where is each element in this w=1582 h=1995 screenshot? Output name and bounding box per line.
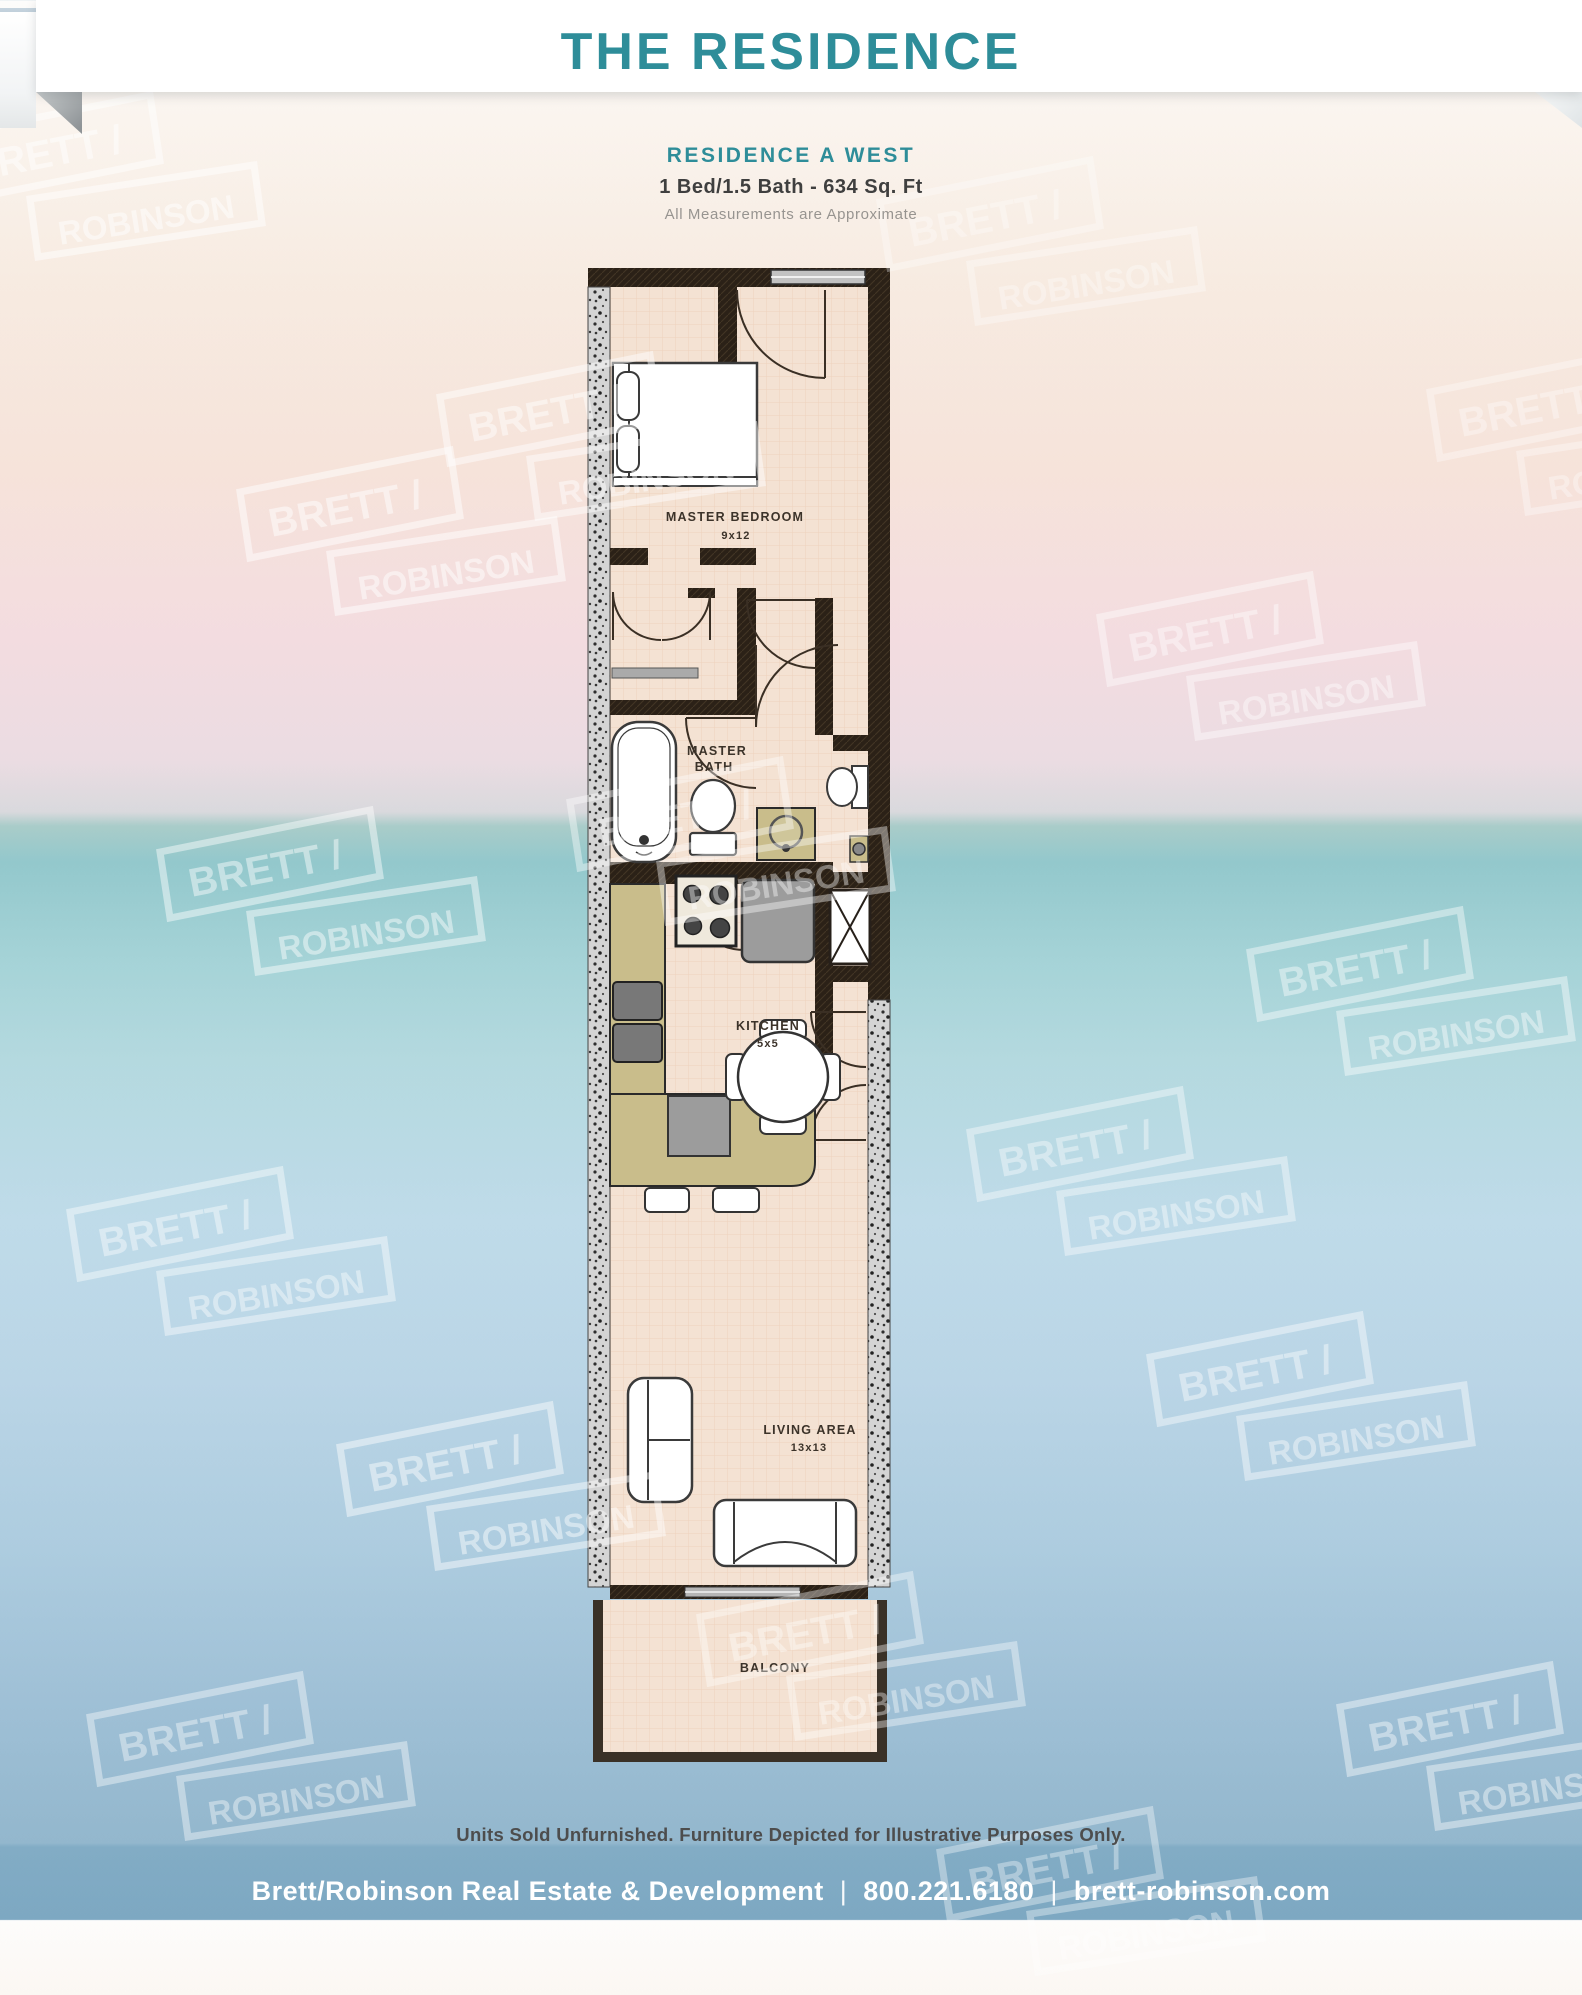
svg-text:ROBINSON: ROBINSON xyxy=(275,902,456,966)
balcony-rail-east xyxy=(877,1600,887,1762)
kitchen-label: KITCHEN xyxy=(736,1019,800,1033)
svg-text:BRETT /: BRETT / xyxy=(1275,933,1436,1006)
powder-toilet xyxy=(827,766,868,808)
master-bath-label-2: BATH xyxy=(695,760,734,774)
ribbon-fold-right xyxy=(1530,88,1582,128)
svg-text:BRETT /: BRETT / xyxy=(95,1193,256,1266)
balcony-rail-west xyxy=(593,1600,603,1762)
bath-vanity-sink xyxy=(757,808,815,860)
brett-robinson-watermark: BRETT /ROBINSON xyxy=(60,1150,400,1350)
footboard xyxy=(613,477,757,486)
unfurnished-footnote: Units Sold Unfurnished. Furniture Depict… xyxy=(0,1824,1582,1846)
kitchen-dims: 5x5 xyxy=(757,1038,779,1050)
footer-contact-line: Brett/Robinson Real Estate & Development… xyxy=(0,1876,1582,1907)
floor-plan: MASTER BEDROOM 9x12 MASTER BATH KITCHEN … xyxy=(585,260,897,1775)
powder-sink xyxy=(850,836,868,862)
svg-text:BRETT /: BRETT / xyxy=(1455,373,1582,446)
master-toilet xyxy=(690,780,736,855)
bar-stool xyxy=(645,1188,689,1212)
east-exterior-wall-lower xyxy=(868,1000,890,1587)
brett-robinson-watermark: BRETT /ROBINSON xyxy=(0,75,270,275)
flyer-page: { "header": { "banner_title": "THE RESID… xyxy=(0,0,1582,1920)
dining-table xyxy=(738,1032,828,1122)
brett-robinson-watermark: BRETT /ROBINSON xyxy=(1090,555,1430,755)
svg-text:BRETT /: BRETT / xyxy=(265,473,426,546)
svg-text:ROBINSON: ROBINSON xyxy=(1215,667,1396,731)
washer-closet-x xyxy=(830,890,870,964)
west-exterior-wall xyxy=(588,287,610,1587)
footer-company: Brett/Robinson Real Estate & Development xyxy=(252,1876,824,1906)
svg-text:BRETT /: BRETT / xyxy=(365,1428,526,1501)
master-bedroom-label: MASTER BEDROOM xyxy=(666,510,804,524)
master-bedroom-dims: 9x12 xyxy=(721,530,750,542)
brett-robinson-watermark: BRETT /ROBINSON xyxy=(1330,1645,1582,1845)
sofa xyxy=(714,1500,856,1566)
svg-text:ROBINSON: ROBINSON xyxy=(1545,442,1582,506)
dishwasher xyxy=(668,1096,730,1156)
svg-text:ROBINSON: ROBINSON xyxy=(1085,1182,1266,1246)
brett-robinson-watermark: BRETT /ROBINSON xyxy=(870,140,1210,340)
brett-robinson-watermark: BRETT /ROBINSON xyxy=(1420,330,1582,530)
svg-text:ROBINSON: ROBINSON xyxy=(185,1262,366,1326)
brett-robinson-watermark: BRETT /ROBINSON xyxy=(1240,890,1580,1090)
burner xyxy=(684,886,701,903)
footer-phone[interactable]: 800.221.6180 xyxy=(863,1876,1034,1906)
brett-robinson-watermark: BRETT /ROBINSON xyxy=(230,430,570,630)
svg-text:ROBINSON: ROBINSON xyxy=(1055,1902,1236,1966)
burner xyxy=(711,919,730,938)
armchair xyxy=(628,1378,692,1502)
pillow xyxy=(617,426,639,472)
burner xyxy=(710,886,728,904)
balcony-rail-south xyxy=(593,1752,887,1762)
closet-south-wall xyxy=(610,700,737,715)
brett-robinson-watermark: BRETT /ROBINSON xyxy=(1140,1295,1480,1495)
balcony-floor xyxy=(603,1600,877,1752)
pillow xyxy=(617,372,639,420)
footer-website[interactable]: brett-robinson.com xyxy=(1074,1876,1331,1906)
burner xyxy=(685,918,702,935)
living-area-label: LIVING AREA xyxy=(763,1423,856,1437)
bed xyxy=(613,363,757,486)
brett-robinson-watermark: BRETT /ROBINSON xyxy=(960,1070,1300,1270)
svg-text:BRETT /: BRETT / xyxy=(185,833,346,906)
sink-faucet xyxy=(782,844,790,852)
brett-robinson-watermark: BRETT /ROBINSON xyxy=(150,790,490,990)
tub-faucet xyxy=(639,835,649,845)
refrigerator xyxy=(742,880,814,962)
measurements-disclaimer: All Measurements are Approximate xyxy=(0,206,1582,223)
living-area-dims: 13x13 xyxy=(791,1442,828,1454)
balcony-label: BALCONY xyxy=(740,1661,810,1675)
stove xyxy=(676,876,736,946)
bar-stool xyxy=(713,1188,759,1212)
page-title: THE RESIDENCE xyxy=(0,22,1582,82)
closet-shelf xyxy=(612,668,698,678)
svg-text:ROBINSON: ROBINSON xyxy=(995,252,1176,316)
footer-separator: | xyxy=(1050,1876,1058,1906)
svg-text:BRETT /: BRETT / xyxy=(1365,1688,1526,1761)
svg-text:ROBINSON: ROBINSON xyxy=(1265,1407,1446,1471)
svg-text:ROBINSON: ROBINSON xyxy=(1455,1757,1582,1821)
svg-text:ROBINSON: ROBINSON xyxy=(205,1767,386,1831)
svg-text:BRETT /: BRETT / xyxy=(1175,1338,1336,1411)
svg-text:BRETT /: BRETT / xyxy=(1125,598,1286,671)
svg-text:BRETT /: BRETT / xyxy=(115,1698,276,1771)
footer-separator: | xyxy=(840,1876,848,1906)
bed-bath-sqft: 1 Bed/1.5 Bath - 634 Sq. Ft xyxy=(0,176,1582,199)
ribbon-fold-left xyxy=(36,92,82,134)
bathtub xyxy=(612,722,676,862)
residence-subtitle: RESIDENCE A WEST xyxy=(0,144,1582,168)
master-bath-label-1: MASTER xyxy=(687,744,747,758)
toilet-tank xyxy=(690,833,736,855)
svg-text:ROBINSON: ROBINSON xyxy=(355,542,536,606)
svg-text:ROBINSON: ROBINSON xyxy=(1365,1002,1546,1066)
svg-text:BRETT /: BRETT / xyxy=(995,1113,1156,1186)
